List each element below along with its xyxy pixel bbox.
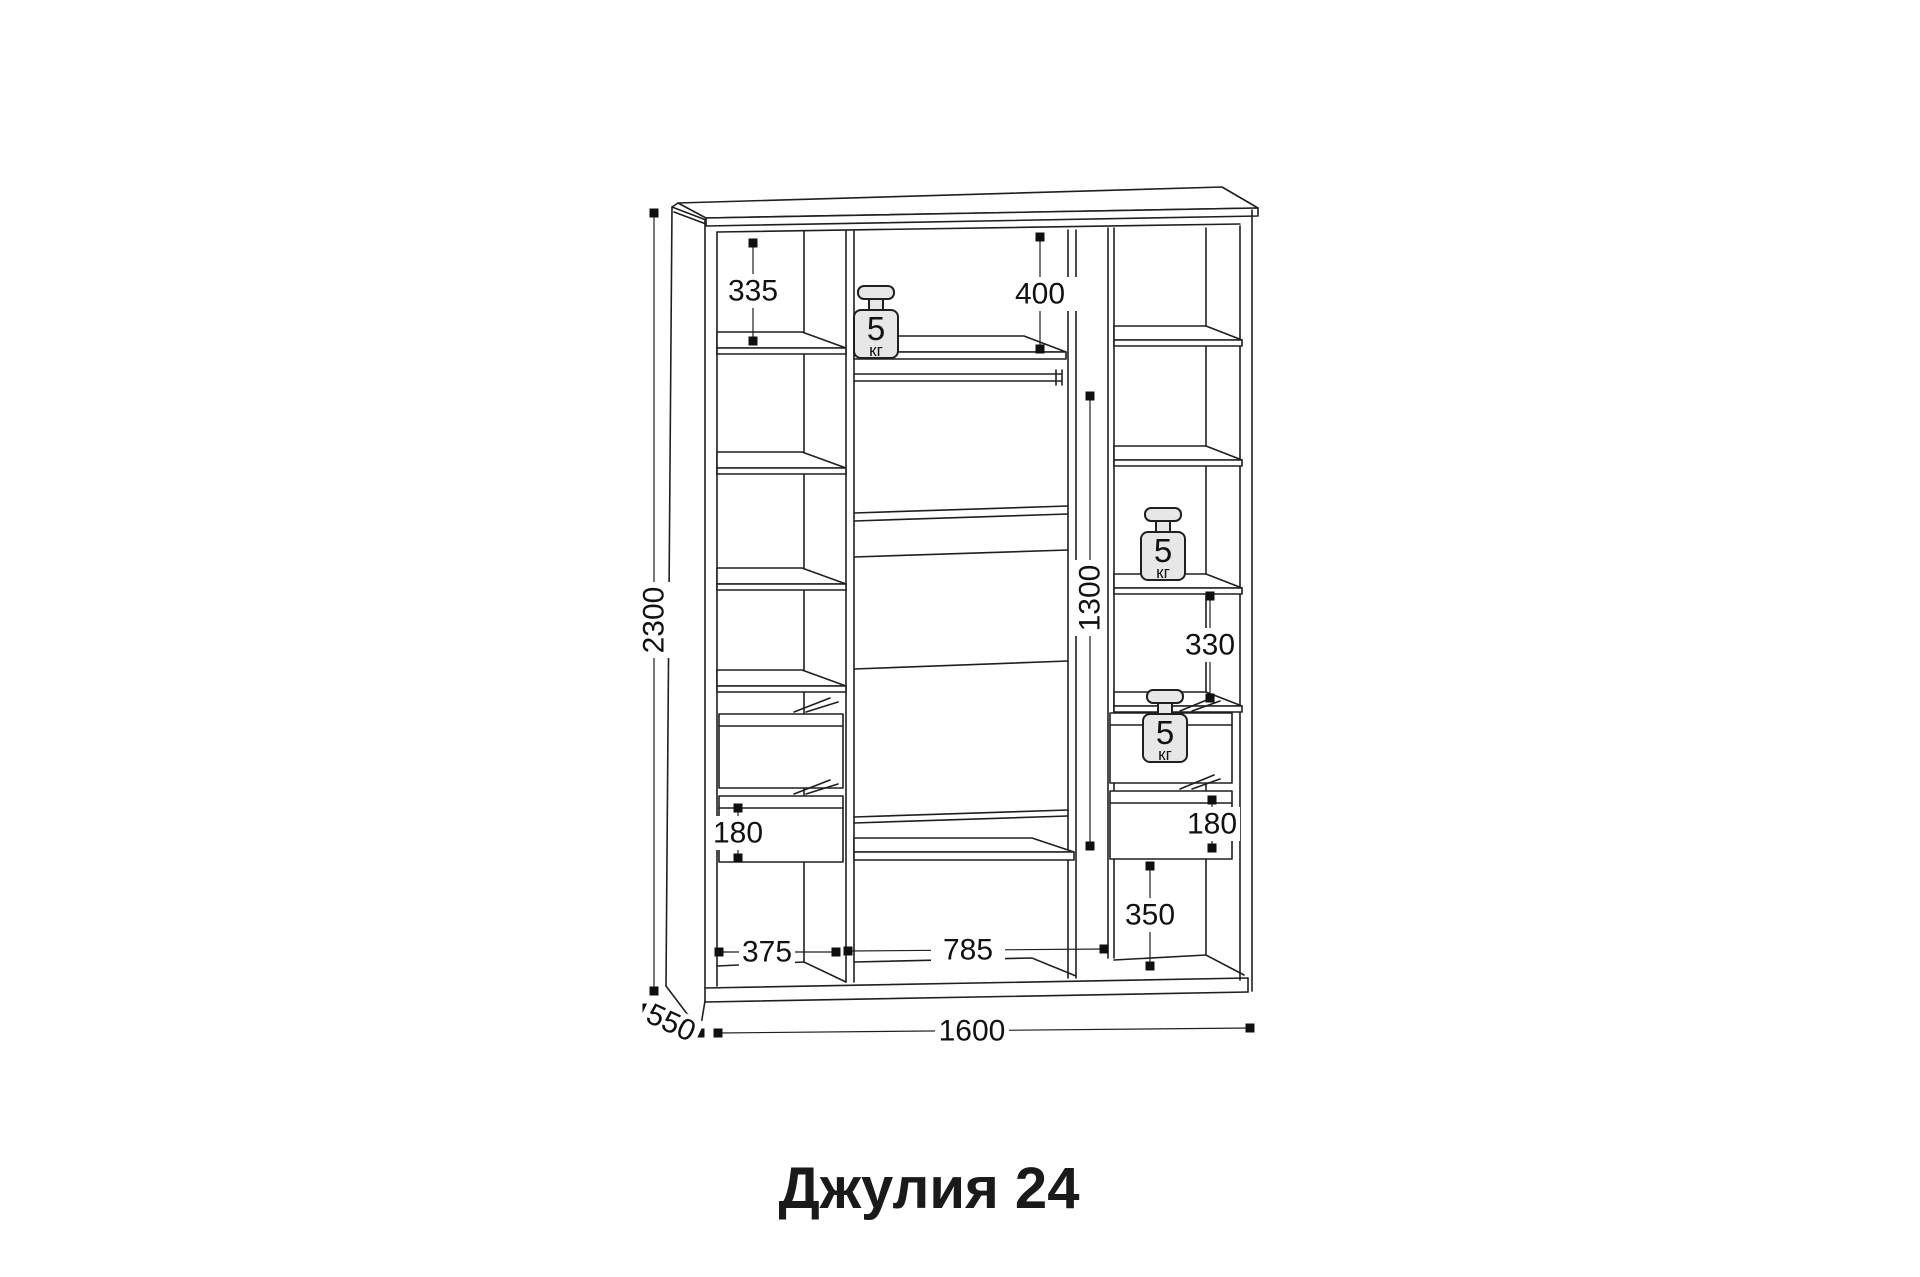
dim-label: 180	[713, 817, 763, 850]
dim-marker	[1208, 796, 1217, 805]
dimension-hanging-space: 1300	[1073, 392, 1107, 851]
dim-label: 2300	[638, 587, 671, 654]
dimension-left-top-shelf: 335	[725, 239, 781, 346]
weight-badge-right-drawer: 5 кг	[1143, 690, 1187, 764]
weight-badge-center-shelf: 5 кг	[854, 286, 898, 360]
dim-label: 1600	[939, 1015, 1006, 1048]
dim-marker	[1206, 694, 1215, 703]
center-bottom-shelf-band	[854, 852, 1074, 860]
top-panel	[672, 187, 1258, 232]
dim-label: 335	[728, 275, 778, 308]
product-title: Джулия 24	[779, 1156, 1080, 1221]
dim-marker	[844, 947, 853, 956]
shelf	[717, 332, 846, 348]
dimension-right-shelf-spacing: 330	[1182, 592, 1238, 703]
dim-marker	[650, 987, 659, 996]
dim-label: 350	[1125, 899, 1175, 932]
dim-marker	[1036, 233, 1045, 242]
interior-ceiling-line	[717, 224, 1240, 232]
left-side-panel	[666, 207, 717, 1031]
weight-cap	[1145, 508, 1181, 521]
shelf	[1114, 326, 1242, 340]
drawer-open-marks	[794, 698, 838, 712]
dim-label: 400	[1015, 278, 1065, 311]
dim-marker	[1246, 1024, 1255, 1033]
shelf-front-band	[1114, 340, 1242, 346]
shelf-front-band	[717, 348, 846, 354]
center-bottom-shelf	[854, 838, 1074, 852]
shelf	[717, 568, 846, 584]
weight-cap	[858, 286, 894, 299]
dim-label: 180	[1187, 808, 1237, 841]
front-left-stile	[705, 220, 717, 1001]
shelf-front-band	[717, 584, 846, 590]
dim-label: 1300	[1074, 565, 1107, 632]
dim-marker	[734, 854, 743, 863]
shelf	[1114, 446, 1242, 460]
dim-depth-label-group: 550	[637, 995, 705, 1050]
dimension-overall-width: 1600	[714, 1014, 1255, 1048]
wardrobe-drawing: 5 кг 5 кг 5 кг 2300 335 400	[0, 0, 1920, 1277]
dim-marker	[714, 1029, 723, 1038]
dim-marker	[749, 337, 758, 346]
dimension-depth: 550	[637, 995, 705, 1050]
dim-marker	[1208, 844, 1217, 853]
dim-marker	[1086, 392, 1095, 401]
weight-unit: кг	[1156, 563, 1170, 582]
dim-marker	[1086, 842, 1095, 851]
shelf-front-band	[1114, 588, 1242, 594]
dim-marker	[1206, 592, 1215, 601]
dim-marker	[650, 209, 659, 218]
shelf-front-band	[717, 686, 846, 692]
floor-front-edge	[705, 978, 1248, 988]
dim-marker	[734, 804, 743, 813]
weight-unit: кг	[1158, 745, 1172, 764]
partition-left-center	[846, 231, 854, 982]
dim-marker	[749, 239, 758, 248]
weight-badge-right-shelf: 5 кг	[1141, 508, 1185, 582]
shelf-front-band	[1114, 706, 1242, 712]
right-side-panel	[1240, 210, 1252, 992]
dim-label: 785	[943, 934, 993, 967]
dim-marker	[1146, 862, 1155, 871]
shelf-front-band	[717, 468, 846, 474]
dimension-overall-height: 2300	[637, 209, 671, 996]
dim-marker	[1146, 962, 1155, 971]
shelf-front-band	[1114, 460, 1242, 466]
center-column	[854, 336, 1074, 860]
drawer-box	[719, 714, 843, 788]
dim-label: 330	[1185, 629, 1235, 662]
hanging-rod	[854, 370, 1062, 385]
dim-marker	[1036, 345, 1045, 354]
dim-marker	[1100, 945, 1109, 954]
dim-label: 375	[742, 936, 792, 969]
left-column-shelves	[717, 332, 846, 692]
shelf	[717, 452, 846, 468]
dimension-left-section-width: 375	[715, 935, 841, 969]
right-edges	[1240, 210, 1252, 992]
weight-cap	[1147, 690, 1183, 703]
back-panel-seams	[854, 506, 1068, 823]
dim-marker	[832, 948, 841, 957]
plinth-line	[705, 992, 1248, 1002]
dim-marker	[715, 948, 724, 957]
weight-unit: кг	[869, 341, 883, 360]
shelf	[717, 670, 846, 686]
dimension-right-bottom-section: 350	[1122, 862, 1178, 971]
